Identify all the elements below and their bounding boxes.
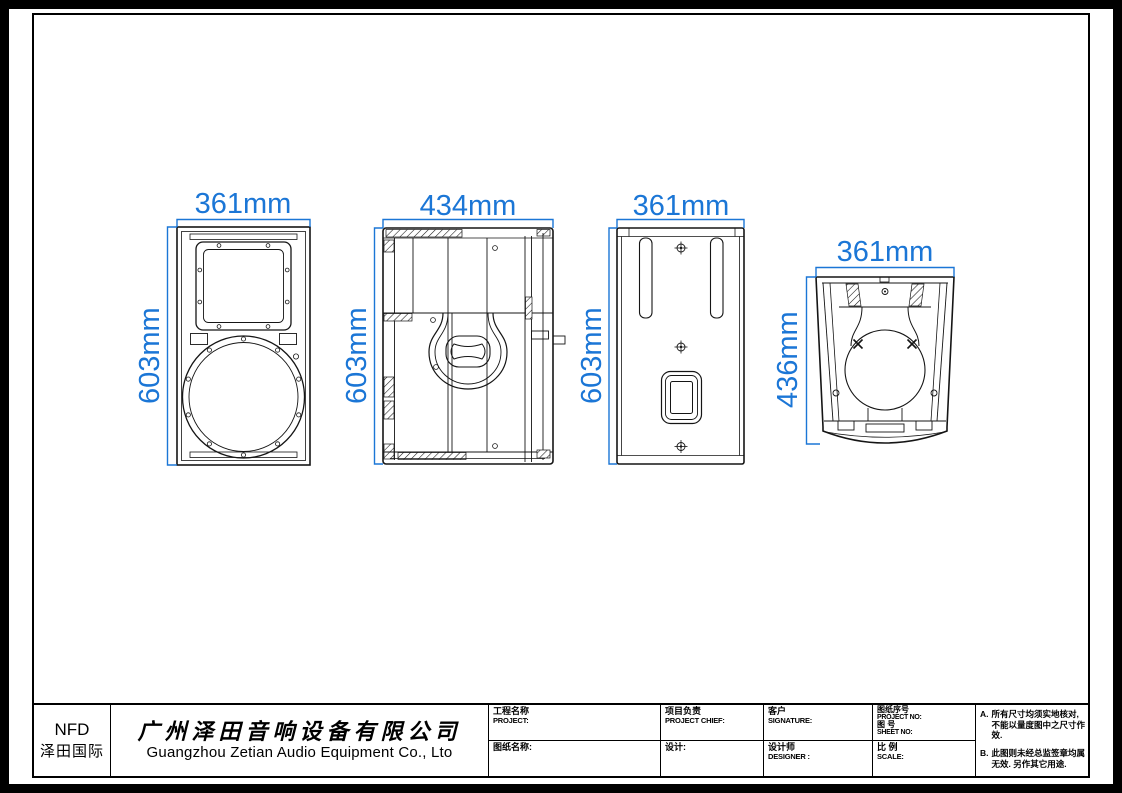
handle-recess bbox=[429, 313, 507, 389]
notes-cell: A. 所有尺寸均须实地核对, 不能以量度图中之尺寸作效. B. 此图则未经总监签… bbox=[975, 705, 1088, 776]
note-a-text: 所有尺寸均须实地核对, 不能以量度图中之尺寸作效. bbox=[992, 709, 1086, 741]
note-a-prefix: A. bbox=[980, 709, 989, 741]
side-height-dimension: 603mm bbox=[341, 290, 373, 422]
woofer-opening bbox=[183, 336, 305, 458]
side-width-dimension: 434mm bbox=[401, 190, 535, 223]
designer-label-en: DESIGNER : bbox=[768, 753, 868, 761]
company-name-cn: 广州泽田音响设备有限公司 bbox=[137, 720, 461, 744]
drawing-number-field: 图纸序号 PROJECT NO: 图 号 SHEET NO: bbox=[872, 705, 975, 740]
logo-text-cn: 泽田国际 bbox=[40, 740, 104, 761]
connector-plate bbox=[662, 372, 702, 424]
projectno-label-cn: 图纸序号 bbox=[877, 706, 971, 714]
drawingname-label: 图纸名称: bbox=[493, 743, 656, 753]
company-name-cell: 广州泽田音响设备有限公司 Guangzhou Zetian Audio Equi… bbox=[110, 705, 488, 776]
horn-opening bbox=[196, 242, 291, 330]
project-field: 工程名称 PROJECT: bbox=[488, 705, 660, 740]
rear-view-drawing bbox=[617, 228, 744, 464]
note-b: B. 此图则未经总监签章均属无效. 另作其它用途. bbox=[980, 748, 1085, 769]
baffle-section-hatch bbox=[384, 240, 394, 459]
design-label: 设计: bbox=[665, 743, 759, 753]
front-view-drawing bbox=[177, 227, 310, 465]
front-height-dimension: 603mm bbox=[134, 290, 166, 422]
rear-width-dimension: 361mm bbox=[614, 190, 748, 223]
top-height-dimension: 436mm bbox=[772, 300, 804, 420]
drawing-sheet: 361mm 603mm 434mm 603mm 361mm 603mm 361m… bbox=[0, 0, 1122, 793]
rear-screws bbox=[675, 242, 688, 454]
side-view-drawing bbox=[383, 228, 565, 464]
client-signature-field: 客户 SIGNATURE: bbox=[763, 705, 872, 740]
company-logo: NFD 泽田国际 bbox=[34, 705, 110, 776]
sheetno-label-en: SHEET NO: bbox=[877, 729, 971, 736]
designer-field: 设计师 DESIGNER : bbox=[763, 740, 872, 776]
design-field: 设计: bbox=[660, 740, 763, 776]
project-chief-field: 项目负责 PROJECT CHIEF: bbox=[660, 705, 763, 740]
top-x-screws bbox=[854, 340, 917, 349]
handle-channel-top bbox=[845, 307, 925, 421]
top-view-drawing bbox=[816, 277, 954, 443]
client-label-en: SIGNATURE: bbox=[768, 717, 868, 725]
title-block: NFD 泽田国际 广州泽田音响设备有限公司 Guangzhou Zetian A… bbox=[32, 703, 1090, 778]
rear-height-dimension: 603mm bbox=[576, 290, 608, 422]
scale-field: 比 例 SCALE: bbox=[872, 740, 975, 776]
technical-drawing-canvas bbox=[0, 0, 1122, 793]
front-width-dimension: 361mm bbox=[176, 188, 310, 221]
chief-label-en: PROJECT CHIEF: bbox=[665, 717, 759, 725]
note-b-prefix: B. bbox=[980, 748, 989, 769]
sheetno-label-cn: 图 号 bbox=[877, 721, 971, 729]
scale-label-en: SCALE: bbox=[877, 753, 971, 761]
top-bottom-rail bbox=[823, 421, 947, 437]
top-width-dimension: 361mm bbox=[818, 236, 952, 269]
logo-text-en: NFD bbox=[55, 720, 90, 740]
company-name-en: Guangzhou Zetian Audio Equipment Co., Lt… bbox=[147, 744, 453, 761]
note-b-text: 此图则未经总监签章均属无效. 另作其它用途. bbox=[992, 748, 1086, 769]
drawing-name-field: 图纸名称: bbox=[488, 740, 660, 776]
note-a: A. 所有尺寸均须实地核对, 不能以量度图中之尺寸作效. bbox=[980, 709, 1085, 741]
project-label-en: PROJECT: bbox=[493, 717, 656, 725]
